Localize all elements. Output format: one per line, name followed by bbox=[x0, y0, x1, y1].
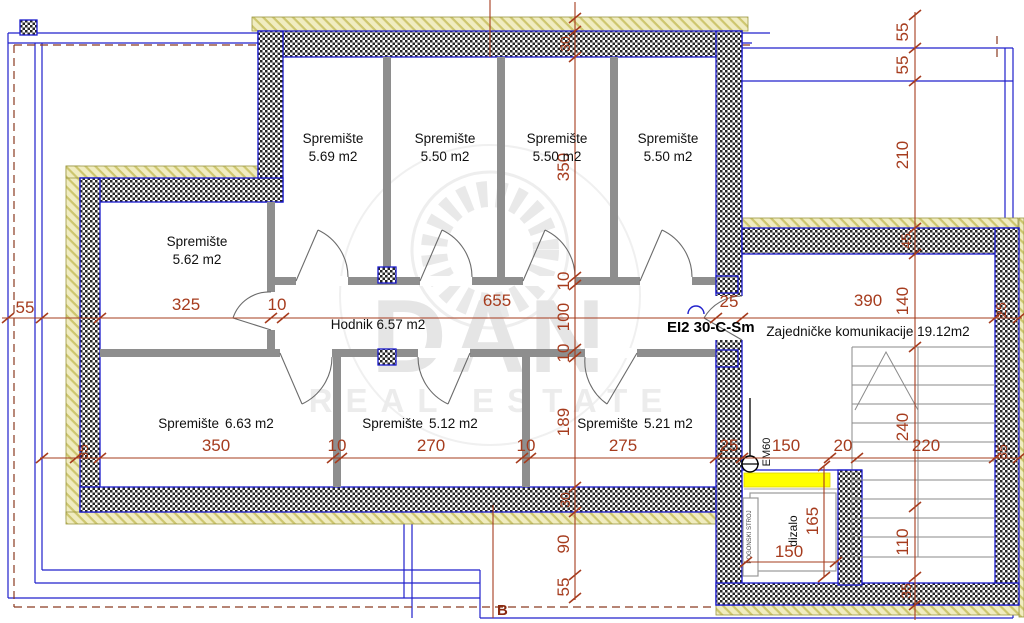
wall-bottom-right bbox=[716, 583, 1019, 605]
dimension-label: 10 bbox=[517, 436, 536, 455]
wall-top bbox=[258, 31, 742, 57]
dimension-label: 20 bbox=[834, 436, 853, 455]
room-name: Spremište bbox=[527, 131, 588, 146]
dimension-label: 210 bbox=[893, 141, 912, 169]
room-label: Spremište6.63 m2 bbox=[158, 416, 274, 431]
wall-left bbox=[80, 178, 100, 512]
room-label: Spremište5.21 m2 bbox=[577, 416, 693, 431]
wall-stairhall-top bbox=[742, 228, 1019, 254]
dimension-label: 150 bbox=[775, 542, 803, 561]
dimension-label: 35 bbox=[898, 583, 914, 599]
room-name: Spremište bbox=[415, 131, 476, 146]
room-label: Spremište5.12 m2 bbox=[362, 416, 478, 431]
room-area: 5.50 m2 bbox=[421, 149, 470, 164]
dimension-label: 150 bbox=[772, 436, 800, 455]
watermark-subtitle: REAL ESTATE bbox=[309, 382, 676, 419]
dimension-label: 30 bbox=[557, 36, 573, 52]
dimension-label: 55 bbox=[893, 23, 912, 42]
dimension-label: 55 bbox=[554, 578, 573, 597]
wall-corner-pier bbox=[20, 20, 37, 35]
floor-plan-drawing: DAN REAL ESTATE bbox=[0, 0, 1024, 623]
dimension-label: 270 bbox=[417, 436, 445, 455]
dimension-label: 90 bbox=[554, 535, 573, 554]
dimension-label: 165 bbox=[803, 507, 822, 535]
section-mark-label: B bbox=[497, 602, 508, 619]
dimension-label: 189 bbox=[554, 408, 573, 436]
stairhall-label: Zajedničke komunikacije 19.12m2 bbox=[766, 324, 969, 339]
corridor-label: Hodnik 6.57 m2 bbox=[331, 317, 426, 332]
wall-stairhall-right bbox=[995, 228, 1019, 605]
dimension-label: 35 bbox=[75, 444, 91, 460]
dimension-label: 275 bbox=[609, 436, 637, 455]
room-name: Spremište bbox=[303, 131, 364, 146]
floor-plan: DAN REAL ESTATE bbox=[0, 0, 1024, 623]
dimension-label: 30 bbox=[557, 492, 573, 508]
wall-step bbox=[80, 178, 283, 202]
fire-door-rating-label: EI2 30-C-Sm bbox=[667, 319, 755, 336]
dimension-label: 350 bbox=[202, 436, 230, 455]
wall-bottom bbox=[80, 487, 742, 512]
dimension-label: 220 bbox=[912, 436, 940, 455]
room-area: 5.62 m2 bbox=[173, 252, 222, 267]
dimension-label: 25 bbox=[993, 302, 1009, 318]
wall-top-left-vertical bbox=[258, 31, 283, 202]
room-name: Spremište bbox=[638, 131, 699, 146]
dimension-label: 10 bbox=[554, 344, 573, 363]
door-closer-icon bbox=[688, 306, 704, 314]
dimension-label: 110 bbox=[893, 528, 912, 555]
dimension-label: 655 bbox=[483, 291, 511, 310]
dimension-label: 100 bbox=[554, 303, 573, 331]
dimension-label: 10 bbox=[328, 436, 347, 455]
dimension-label: 55 bbox=[893, 56, 912, 75]
dimension-label: 325 bbox=[172, 295, 200, 314]
dimension-label: 10 bbox=[268, 295, 287, 314]
dimension-label: 35 bbox=[994, 444, 1010, 460]
room-area: 5.69 m2 bbox=[309, 149, 358, 164]
dimension-label: 10 bbox=[554, 272, 573, 291]
dimension-label: 240 bbox=[893, 413, 912, 441]
stair-direction-arrow bbox=[855, 352, 918, 410]
dimension-label: 390 bbox=[854, 291, 882, 310]
room-area: 5.50 m2 bbox=[533, 149, 582, 164]
room-area: 5.50 m2 bbox=[644, 149, 693, 164]
wall-lift-shaft bbox=[838, 470, 862, 585]
dimension-label: 140 bbox=[893, 287, 912, 315]
lift-highlight bbox=[744, 473, 830, 487]
dimension-label: 55 bbox=[16, 298, 35, 317]
lift-machine-label: POGONSKI STROJ bbox=[747, 510, 753, 563]
dimension-label: 45 bbox=[898, 233, 914, 249]
dimension-label: 25 bbox=[720, 292, 739, 311]
dimension-label: 25 bbox=[720, 436, 739, 455]
room-name: Spremište bbox=[167, 234, 228, 249]
